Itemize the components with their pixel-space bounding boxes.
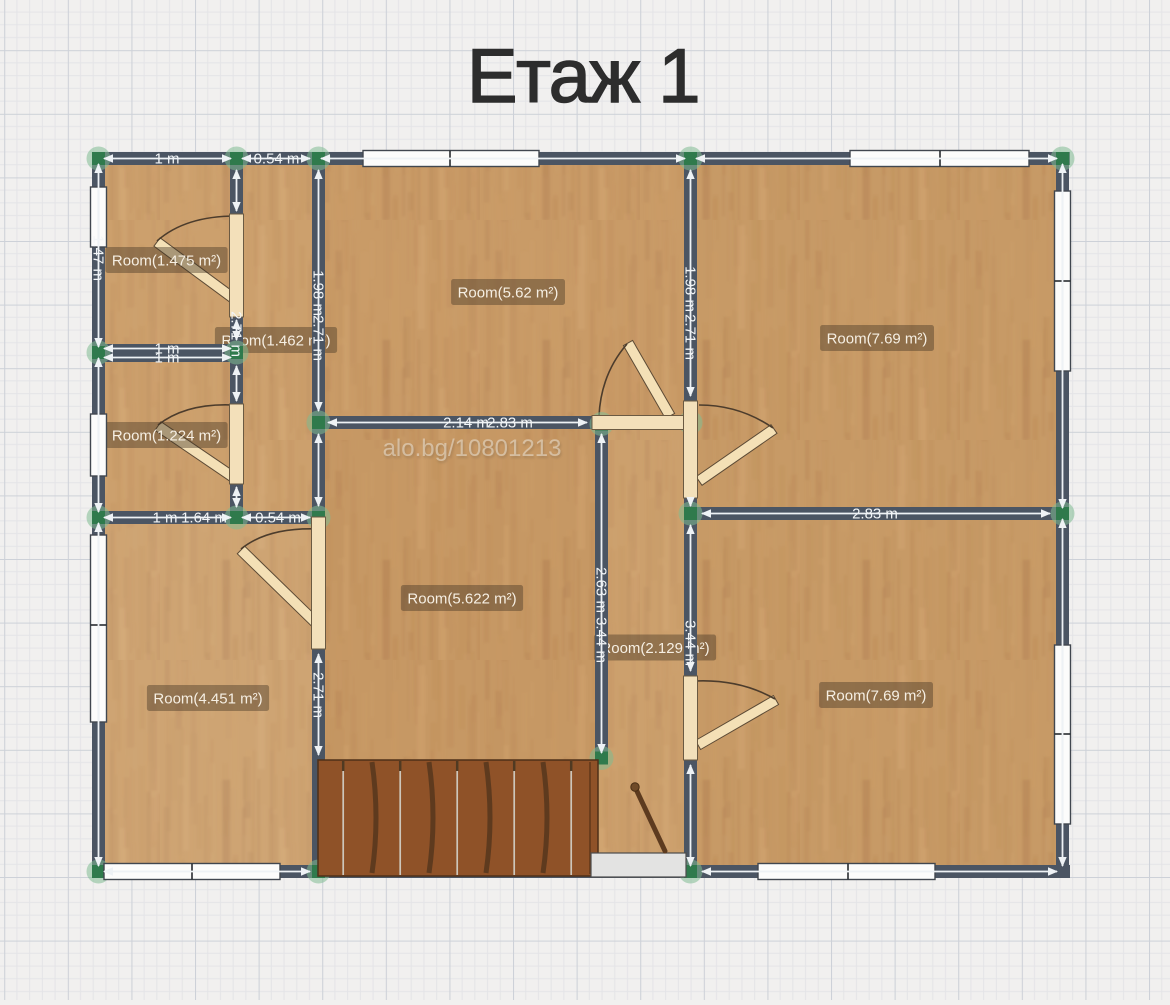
svg-text:1 m: 1 m (152, 510, 177, 527)
svg-text:1.64 m: 1.64 m (181, 510, 227, 527)
svg-text:Етаж 1: Етаж 1 (467, 34, 699, 119)
svg-text:2.71 m: 2.71 m (309, 672, 326, 718)
svg-text:Room(5.622 m²): Room(5.622 m²) (407, 591, 516, 608)
svg-text:Room(7.69 m²): Room(7.69 m²) (827, 331, 928, 348)
svg-text:Room(7.69 m²): Room(7.69 m²) (826, 688, 927, 705)
svg-text:0.54 m: 0.54 m (255, 510, 301, 527)
svg-text:1.98 m: 1.98 m (309, 270, 326, 316)
svg-text:2.63 m: 2.63 m (592, 567, 609, 613)
svg-text:3.44 m: 3.44 m (592, 617, 609, 663)
svg-text:Room(5.62 m²): Room(5.62 m²) (458, 285, 559, 302)
svg-text:2.83 m: 2.83 m (852, 506, 898, 523)
svg-text:2.83 m: 2.83 m (487, 415, 533, 432)
svg-text:1 m: 1 m (154, 151, 179, 168)
svg-text:2.71 m: 2.71 m (681, 314, 698, 360)
svg-text:Room(1.224 m²): Room(1.224 m²) (112, 428, 221, 445)
svg-text:0.54 m: 0.54 m (254, 151, 300, 168)
svg-text:1 m: 1 m (154, 350, 179, 367)
svg-text:2.71 m: 2.71 m (227, 311, 244, 357)
svg-text:1.98 m: 1.98 m (681, 266, 698, 312)
svg-text:alo.bg/10801213: alo.bg/10801213 (383, 435, 562, 462)
svg-text:Room(4.451 m²): Room(4.451 m²) (153, 691, 262, 708)
svg-text:1.47 m: 1.47 m (89, 235, 106, 281)
svg-text:2.14 m: 2.14 m (443, 415, 489, 432)
svg-text:2.71 m: 2.71 m (309, 315, 326, 361)
svg-text:3.44 m: 3.44 m (681, 620, 698, 666)
svg-text:Room(1.475 m²): Room(1.475 m²) (112, 253, 221, 270)
